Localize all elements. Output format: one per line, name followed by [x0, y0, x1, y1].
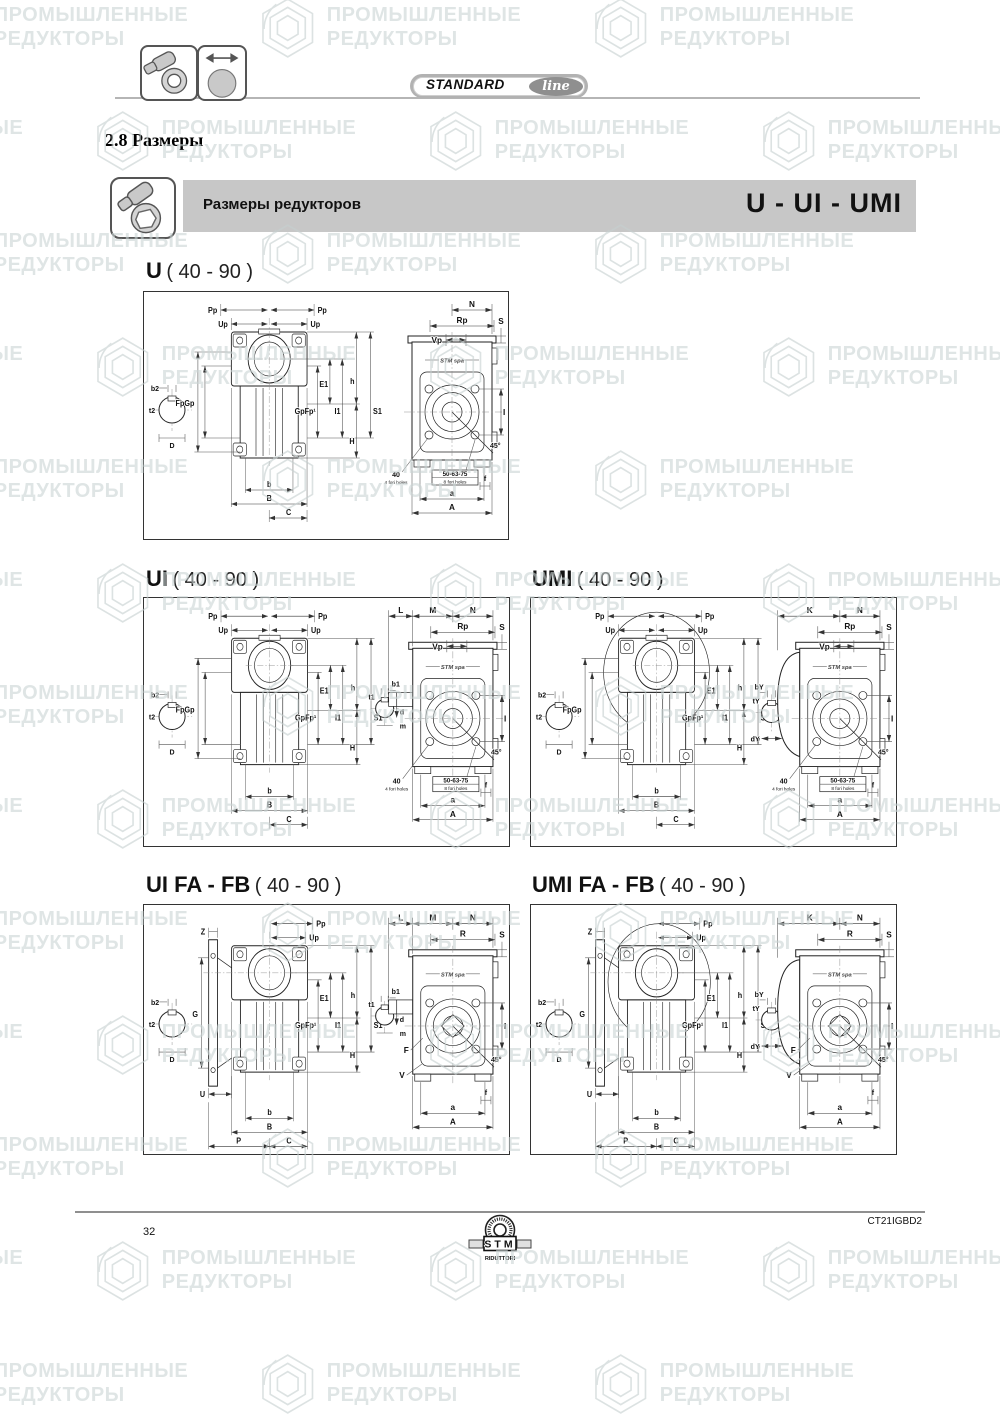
holes-note: 40: [393, 779, 401, 786]
drawing-ui: b2 t2 D Pp: [144, 598, 509, 846]
holes-note: 4 fori holes: [772, 787, 796, 792]
dim-label: S: [499, 931, 505, 940]
watermark: ПРОМЫШЛЕННЫЕРЕДУКТОРЫ: [0, 1238, 23, 1304]
dim-label: B: [654, 1122, 660, 1132]
front-view: Z G U Pp Up E1 GpFp¹ I1: [579, 918, 770, 1150]
motor-bell-housing: [778, 652, 800, 756]
dim-label: a: [451, 1103, 456, 1112]
dim-label: F: [791, 1046, 796, 1055]
dim-label: E1: [707, 993, 716, 1003]
dim-label: K: [807, 606, 813, 615]
dim-label: A: [450, 810, 456, 819]
holes-note: 50-63-75: [443, 471, 468, 478]
side-view: STM spa K N R S I 45° F V: [778, 914, 894, 1130]
dim-label: K: [807, 914, 813, 923]
side-view: STM spa L M N R S I 45° F: [389, 914, 507, 1130]
dim-label: N: [857, 606, 863, 615]
dim-label: S: [886, 623, 892, 632]
dim-label: D: [170, 750, 175, 757]
dim-label: FpGp: [176, 705, 195, 715]
dim-label: E1: [320, 993, 329, 1003]
dim-label: S1: [373, 407, 382, 417]
dim-label: Up: [309, 933, 319, 943]
dim-label: m: [400, 1031, 406, 1038]
panel-range: ( 40 - 90 ): [166, 261, 253, 283]
dim-label: tY: [753, 1006, 760, 1013]
watermark: ПРОМЫШЛЕННЫЕРЕДУКТОРЫ: [588, 447, 855, 513]
dim-label: S: [498, 317, 504, 326]
dim-label: V: [399, 1071, 405, 1080]
dim-label: b2: [538, 692, 546, 699]
section-icon-box: [110, 177, 176, 239]
watermark: ПРОМЫШЛЕННЫЕРЕДУКТОРЫ: [423, 108, 690, 174]
dim-label: Pp: [703, 919, 712, 929]
dim-label: C: [673, 1136, 679, 1146]
output-shaft-section: b2 t2 D: [536, 691, 579, 756]
dim-label: H: [350, 1051, 356, 1061]
panel-umi-fa-fb: b2 t2 D: [530, 904, 897, 1155]
dim-label: FpGp: [176, 399, 195, 409]
dim-label: Up: [696, 933, 706, 943]
dim-label: t2: [149, 408, 155, 415]
dim-label: 45°: [491, 749, 502, 757]
dim-label: b2: [151, 1000, 159, 1007]
dim-label: N: [469, 300, 475, 309]
front-view: Pp Pp Up Up FpGp E1 GpFp¹ I1 h S1: [176, 304, 383, 522]
panel-model: UMI FA - FB: [532, 872, 655, 897]
dim-label: Rp: [457, 316, 468, 325]
dim-label: a: [838, 1103, 843, 1112]
panel-model: UI: [146, 566, 168, 591]
dim-label: m: [400, 724, 406, 731]
dim-label: bY: [755, 684, 764, 691]
dim-label: D: [557, 1057, 562, 1064]
dim-label: C: [673, 814, 679, 824]
stm-logo: STM RIDUTTORI: [465, 1213, 535, 1273]
dim-label: H: [737, 743, 743, 753]
dim-label: I: [891, 1022, 893, 1031]
watermark: ПРОМЫШЛЕННЫЕРЕДУКТОРЫ: [588, 0, 855, 61]
dim-label: I: [504, 1022, 506, 1031]
dim-label: a: [838, 796, 843, 805]
dim-label: dY: [751, 1044, 760, 1051]
dim-label: b: [267, 786, 272, 796]
panel-title-ui-fa-fb: UI FA - FB ( 40 - 90 ): [146, 872, 341, 898]
dim-label: I1: [335, 713, 342, 723]
dim-label: FpGp: [563, 705, 582, 715]
dim-label: H: [349, 437, 355, 447]
dim-label: b1: [392, 681, 400, 688]
dim-label: P: [236, 1136, 241, 1146]
dim-label: GpFp¹: [682, 713, 704, 723]
watermark: ПРОМЫШЛЕННЫЕРЕДУКТОРЫ: [756, 108, 1000, 174]
dim-label: P: [623, 1136, 628, 1146]
panel-title-umi: UMI ( 40 - 90 ): [532, 566, 663, 592]
side-view: STM spa K N Rp Vp S I 45° 40: [772, 606, 894, 822]
dim-label: N: [470, 606, 476, 615]
dim-label: t2: [536, 714, 542, 721]
panel-title-ui: UI ( 40 - 90 ): [146, 566, 259, 592]
output-shaft-section: b2 t2 D: [149, 999, 192, 1064]
dim-label: I1: [722, 713, 729, 723]
holes-note: 40: [780, 779, 788, 786]
dim-label: GpFp¹: [295, 407, 317, 417]
drawing-umi: b2 t2 D P: [531, 598, 896, 846]
dim-label: a: [451, 796, 456, 805]
stm-logo-subtext: RIDUTTORI: [485, 1256, 516, 1262]
dim-label: I1: [722, 1021, 729, 1031]
worm-gearbox-icon: [142, 47, 196, 99]
catalog-page: ПРОМЫШЛЕННЫЕРЕДУКТОРЫПРОМЫШЛЕННЫЕРЕДУКТО…: [0, 0, 1000, 1414]
dim-label: B: [267, 1122, 273, 1132]
dim-label: S: [499, 623, 505, 632]
section-bar-models: U - UI - UMI: [746, 188, 902, 219]
shaft-dimension-icon: [199, 47, 245, 99]
dim-label: 45°: [878, 749, 889, 757]
watermark: ПРОМЫШЛЕННЫЕРЕДУКТОРЫ: [0, 786, 23, 852]
dim-label: M: [429, 606, 436, 615]
dim-label: b2: [151, 692, 159, 699]
dim-label: h: [351, 683, 356, 693]
dim-label: Pp: [705, 612, 714, 622]
dim-label: f: [485, 1090, 488, 1097]
dim-label: E1: [320, 686, 329, 696]
badge-line-oval: line: [529, 77, 583, 96]
panel-range: ( 40 - 90 ): [577, 569, 664, 591]
dim-label: A: [837, 1117, 843, 1126]
dim-label: d: [400, 1017, 404, 1024]
badge-line-label: line: [542, 79, 570, 94]
dim-label: d: [400, 709, 404, 716]
watermark: ПРОМЫШЛЕННЫЕРЕДУКТОРЫ: [0, 334, 23, 400]
doc-code: CT21IGBD2: [868, 1216, 922, 1227]
watermark: ПРОМЫШЛЕННЫЕРЕДУКТОРЫ: [0, 560, 23, 626]
holes-note: 4 fori holes: [385, 480, 409, 485]
dim-label: f: [485, 783, 488, 790]
dim-label: t2: [149, 714, 155, 721]
watermark: ПРОМЫШЛЕННЫЕРЕДУКТОРЫ: [90, 1238, 357, 1304]
header-icon-box-dimension: [197, 45, 247, 101]
dim-label: GpFp¹: [295, 713, 317, 723]
dim-label: V: [786, 1071, 792, 1080]
dim-label: b: [267, 480, 272, 490]
dim-label: t1: [368, 694, 374, 701]
dim-label: I: [503, 408, 505, 417]
dim-label: t2: [149, 1022, 155, 1029]
panel-title-u: U ( 40 - 90 ): [146, 258, 253, 284]
drawing-u: b2 t2 D Pp: [144, 292, 508, 539]
dim-label: Vp: [432, 336, 442, 345]
dim-label: 45°: [490, 442, 501, 450]
dim-label: t1: [368, 1002, 374, 1009]
panel-ui-fa-fb: b2 t2 D Z: [143, 904, 510, 1155]
panel-title-umi-fa-fb: UMI FA - FB ( 40 - 90 ): [532, 872, 746, 898]
output-shaft-section: b2 t2 D: [149, 385, 192, 450]
dim-label: S: [886, 931, 892, 940]
dim-label: H: [350, 743, 356, 753]
holes-note: 50-63-75: [830, 778, 855, 785]
dim-label: Up: [218, 626, 228, 636]
watermark: ПРОМЫШЛЕННЫЕРЕДУКТОРЫ: [756, 1238, 1000, 1304]
panel-model: UI FA - FB: [146, 872, 250, 897]
dim-label: b: [654, 1108, 659, 1118]
dim-label: E1: [319, 380, 328, 390]
watermark: ПРОМЫШЛЕННЫЕРЕДУКТОРЫ: [423, 1238, 690, 1304]
dim-label: f: [872, 1090, 875, 1097]
dim-label: Pp: [318, 306, 327, 316]
dim-label: G: [192, 1010, 198, 1020]
dim-label: C: [286, 508, 292, 518]
stm-mark: STM spa: [440, 359, 465, 365]
standard-line-badge: STANDARD line: [410, 74, 588, 98]
dim-label: Up: [605, 626, 615, 636]
dim-label: b: [267, 1108, 272, 1118]
dim-label: Pp: [208, 612, 217, 622]
dim-label: B: [267, 494, 273, 504]
holes-note: 8 fori holes: [444, 786, 468, 791]
watermark: ПРОМЫШЛЕННЫЕРЕДУКТОРЫ: [0, 1012, 23, 1078]
dim-label: Up: [311, 626, 321, 636]
dim-label: a: [450, 489, 455, 498]
dim-label: I: [504, 714, 506, 723]
panel-range: ( 40 - 90 ): [172, 569, 259, 591]
dim-label: L: [398, 914, 403, 923]
dim-label: Up: [311, 320, 321, 330]
drawing-umi-fa-fb: b2 t2 D: [531, 905, 896, 1154]
section-bar: Размеры редукторов U - UI - UMI: [183, 180, 916, 232]
dim-label: f: [872, 783, 875, 790]
dim-label: Pp: [208, 306, 217, 316]
dim-label: b2: [538, 1000, 546, 1007]
dim-label: I1: [335, 1021, 342, 1031]
dim-label: bY: [755, 992, 764, 999]
stm-mark: STM spa: [828, 972, 853, 978]
dim-label: I: [891, 714, 893, 723]
dim-label: Z: [201, 927, 206, 937]
dim-label: G: [579, 1010, 585, 1020]
output-flange: [596, 940, 605, 1086]
dim-label: 45°: [491, 1056, 502, 1064]
badge-standard-label: STANDARD: [426, 77, 505, 92]
dim-label: Vp: [819, 642, 830, 651]
holes-note: 50-63-75: [443, 778, 468, 785]
panel-umi: b2 t2 D P: [530, 597, 897, 847]
page-number: 32: [143, 1226, 155, 1238]
front-view: Z G U Pp Up E1 GpFp¹ I1: [192, 918, 383, 1150]
dim-label: A: [449, 503, 455, 512]
dim-label: D: [169, 443, 174, 450]
watermark: ПРОМЫШЛЕННЫЕРЕДУКТОРЫ: [0, 108, 23, 174]
panel-u: b2 t2 D Pp: [143, 291, 509, 540]
holes-note: 40: [392, 472, 400, 479]
dim-label: D: [170, 1057, 175, 1064]
dim-label: b2: [151, 386, 159, 393]
watermark: ПРОМЫШЛЕННЫЕРЕДУКТОРЫ: [756, 334, 1000, 400]
dim-label: M: [429, 914, 436, 923]
dim-label: GpFp¹: [682, 1021, 704, 1031]
dim-label: Up: [698, 626, 708, 636]
watermark: ПРОМЫШЛЕННЫЕРЕДУКТОРЫ: [588, 1351, 855, 1414]
watermark: ПРОМЫШЛЕННЫЕРЕДУКТОРЫ: [0, 1351, 188, 1414]
dim-label: H: [737, 1051, 743, 1061]
panel-model: UMI: [532, 566, 572, 591]
dim-label: L: [398, 606, 403, 615]
stm-badge-icon: STM RIDUTTORI: [465, 1213, 535, 1273]
dim-label: GpFp¹: [295, 1021, 317, 1031]
dim-label: tY: [753, 698, 760, 705]
side-view: STM spa N Rp Vp S I 45° 40 4 fori holes: [385, 300, 506, 515]
dim-label: 45°: [878, 1056, 889, 1064]
dim-label: F: [404, 1046, 409, 1055]
dim-label: Pp: [316, 919, 325, 929]
output-shaft-section: b2 t2 D: [536, 999, 579, 1064]
dim-label: Pp: [595, 612, 604, 622]
stm-mark: STM spa: [441, 665, 466, 671]
dim-label: Rp: [844, 622, 855, 631]
dim-label: A: [450, 1117, 456, 1126]
panel-model: U: [146, 258, 162, 283]
header-icon-box-gearbox: [140, 45, 198, 101]
worm-gearbox-icon: [112, 179, 174, 237]
dim-label: b1: [392, 989, 400, 996]
dim-label: R: [847, 930, 853, 939]
dim-label: h: [350, 377, 355, 387]
dim-label: A: [837, 810, 843, 819]
stm-mark: STM spa: [441, 972, 466, 978]
dim-label: C: [286, 814, 292, 824]
dim-label: h: [351, 990, 356, 1000]
dim-label: I1: [334, 407, 341, 417]
dim-label: N: [857, 914, 863, 923]
panel-range: ( 40 - 90 ): [255, 875, 342, 897]
motor-bell-housing: [778, 960, 800, 1064]
holes-note: 4 fori holes: [385, 787, 409, 792]
dim-label: E1: [707, 686, 716, 696]
section-bar-title: Размеры редукторов: [203, 196, 361, 213]
front-view: Pp Pp Up Up FpGp E1 GpFp¹ I1 h S1: [563, 610, 770, 829]
dim-label: N: [470, 914, 476, 923]
dim-label: Vp: [432, 642, 443, 651]
dim-label: dY: [751, 737, 760, 744]
dim-label: Z: [588, 927, 593, 937]
output-flange: [209, 940, 218, 1086]
dim-label: t2: [536, 1022, 542, 1029]
panel-range: ( 40 - 90 ): [659, 875, 746, 897]
stm-logo-text: STM: [484, 1239, 515, 1251]
dim-label: U: [200, 1090, 206, 1100]
section-heading: 2.8 Размеры: [105, 130, 203, 151]
dim-label: C: [286, 1136, 292, 1146]
watermark: ПРОМЫШЛЕННЫЕРЕДУКТОРЫ: [255, 1351, 522, 1414]
dim-label: b: [654, 786, 659, 796]
dim-label: h: [738, 990, 743, 1000]
dim-label: U: [587, 1090, 593, 1100]
holes-note: 8 fori holes: [444, 480, 468, 485]
output-shaft-section: b2 t2 D: [149, 691, 192, 756]
front-view: Pp Pp Up Up FpGp E1 GpFp¹ I1 h S1: [176, 610, 383, 829]
dim-label: h: [738, 683, 743, 693]
dim-label: Rp: [457, 622, 468, 631]
dim-label: R: [460, 930, 466, 939]
dim-label: Pp: [318, 612, 327, 622]
dim-label: f: [484, 476, 487, 483]
holes-note: 8 fori holes: [831, 786, 855, 791]
watermark: ПРОМЫШЛЕННЫЕРЕДУКТОРЫ: [255, 0, 522, 61]
drawing-ui-fa-fb: b2 t2 D Z: [144, 905, 509, 1154]
dim-label: D: [557, 750, 562, 757]
dim-label: B: [654, 800, 660, 810]
panel-ui: b2 t2 D Pp: [143, 597, 510, 847]
stm-mark: STM spa: [828, 665, 853, 671]
dim-label: Up: [218, 320, 228, 330]
dim-label: B: [267, 800, 273, 810]
